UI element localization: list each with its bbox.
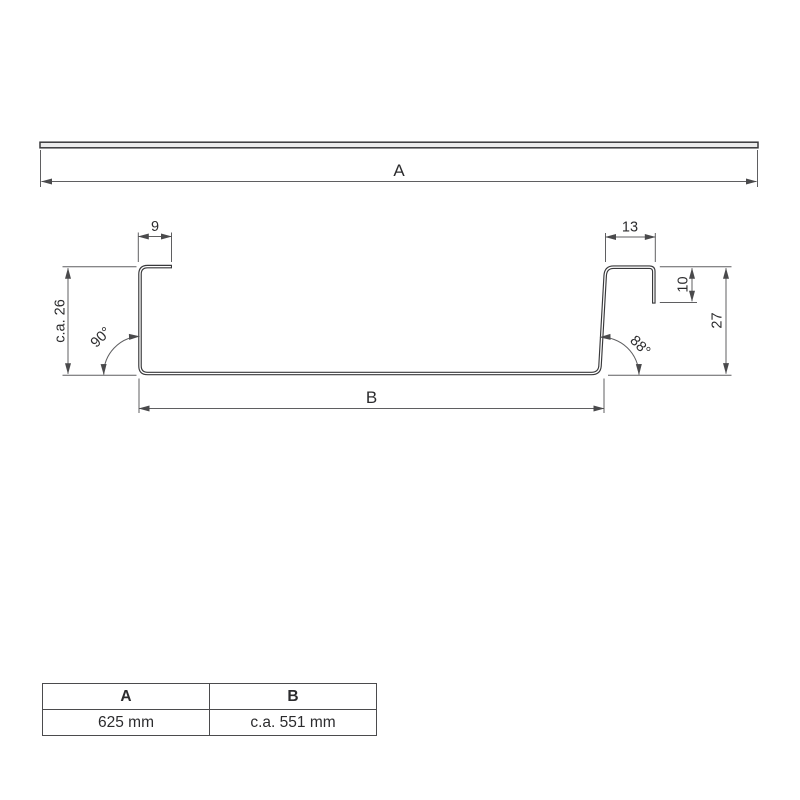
angle-90-arc xyxy=(104,336,140,374)
angle-90-label: 90° xyxy=(88,324,115,351)
dim-10-label: 10 xyxy=(676,276,692,292)
angle-right: 88° xyxy=(600,333,653,375)
table-header-b: B xyxy=(210,684,377,710)
dimension-a: A xyxy=(41,150,758,187)
table-header-row: A B xyxy=(43,684,377,710)
bent-profile xyxy=(140,267,654,374)
dimension-table: A B 625 mm c.a. 551 mm xyxy=(42,683,377,736)
table-row: 625 mm c.a. 551 mm xyxy=(43,710,377,736)
profile-technical-drawing: A 9 13 c.a. 26 xyxy=(0,0,800,800)
dim-13-label: 13 xyxy=(622,220,638,236)
profile-sheet-outline xyxy=(140,267,654,374)
dimension-right-lip: 13 xyxy=(606,220,656,263)
dimension-b: B xyxy=(139,379,604,414)
dim-27-label: 27 xyxy=(710,312,726,328)
table-value-b: c.a. 551 mm xyxy=(210,710,377,736)
flat-sheet xyxy=(40,142,758,148)
dim-b-label: B xyxy=(366,388,377,407)
dimension-right-height: 27 xyxy=(608,268,732,375)
drawing-page: A 9 13 c.a. 26 xyxy=(0,0,800,800)
table-value-a: 625 mm xyxy=(43,710,210,736)
dim-a-label: A xyxy=(393,161,405,180)
dimension-right-lip-depth: 10 xyxy=(660,267,732,303)
dimension-left-lip: 9 xyxy=(138,219,171,262)
table-header-a: A xyxy=(43,684,210,710)
dim-9-label: 9 xyxy=(151,219,159,235)
dim-26-label: c.a. 26 xyxy=(53,299,69,343)
angle-left: 90° xyxy=(88,324,140,374)
profile-sheet-core xyxy=(140,267,654,374)
angle-88-label: 88° xyxy=(626,333,653,360)
flat-sheet-strip xyxy=(40,142,758,148)
dimension-left-height: c.a. 26 xyxy=(53,267,137,375)
